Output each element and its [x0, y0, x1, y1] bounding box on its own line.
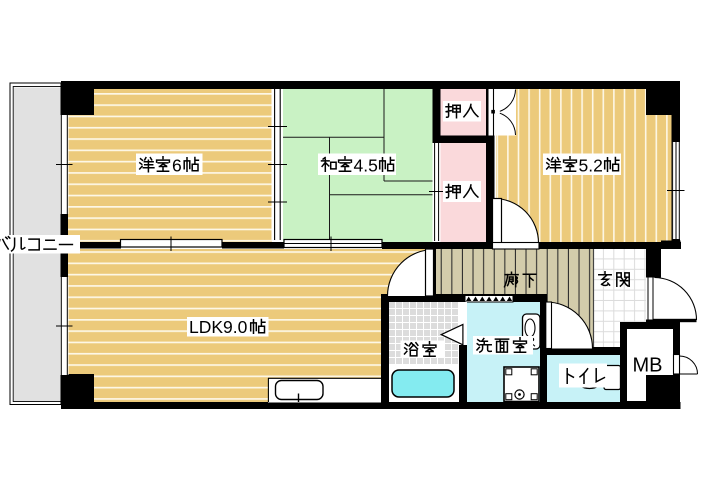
svg-text:5.2: 5.2: [579, 155, 603, 175]
svg-text:LDK9.0: LDK9.0: [189, 317, 248, 337]
svg-text:6: 6: [172, 155, 182, 175]
svg-text:MB: MB: [633, 355, 663, 377]
svg-text:4.5: 4.5: [354, 155, 378, 175]
